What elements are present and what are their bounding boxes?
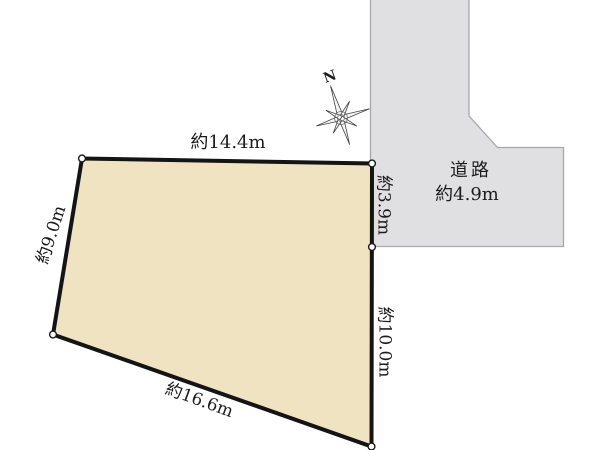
vertex-marker bbox=[368, 443, 375, 450]
vertex-marker bbox=[79, 155, 86, 162]
land-plot-diagram: 約14.4m 約9.0m 約3.9m 約10.0m 約16.6m 道路 約4.9… bbox=[0, 0, 600, 450]
road-name-label: 道路 bbox=[450, 162, 492, 180]
right-lower-edge-dimension-label: 約10.0m bbox=[376, 307, 393, 378]
diagram-shapes bbox=[0, 0, 600, 450]
vertex-marker bbox=[369, 244, 376, 251]
compass-rose-icon bbox=[306, 76, 378, 152]
top-edge-dimension-label: 約14.4m bbox=[190, 134, 265, 152]
vertex-marker bbox=[369, 160, 376, 167]
vertex-marker bbox=[50, 331, 57, 338]
right-upper-edge-dimension-label: 約3.9m bbox=[375, 175, 392, 235]
road-width-label: 約4.9m bbox=[435, 186, 499, 204]
road-area bbox=[371, 0, 564, 247]
